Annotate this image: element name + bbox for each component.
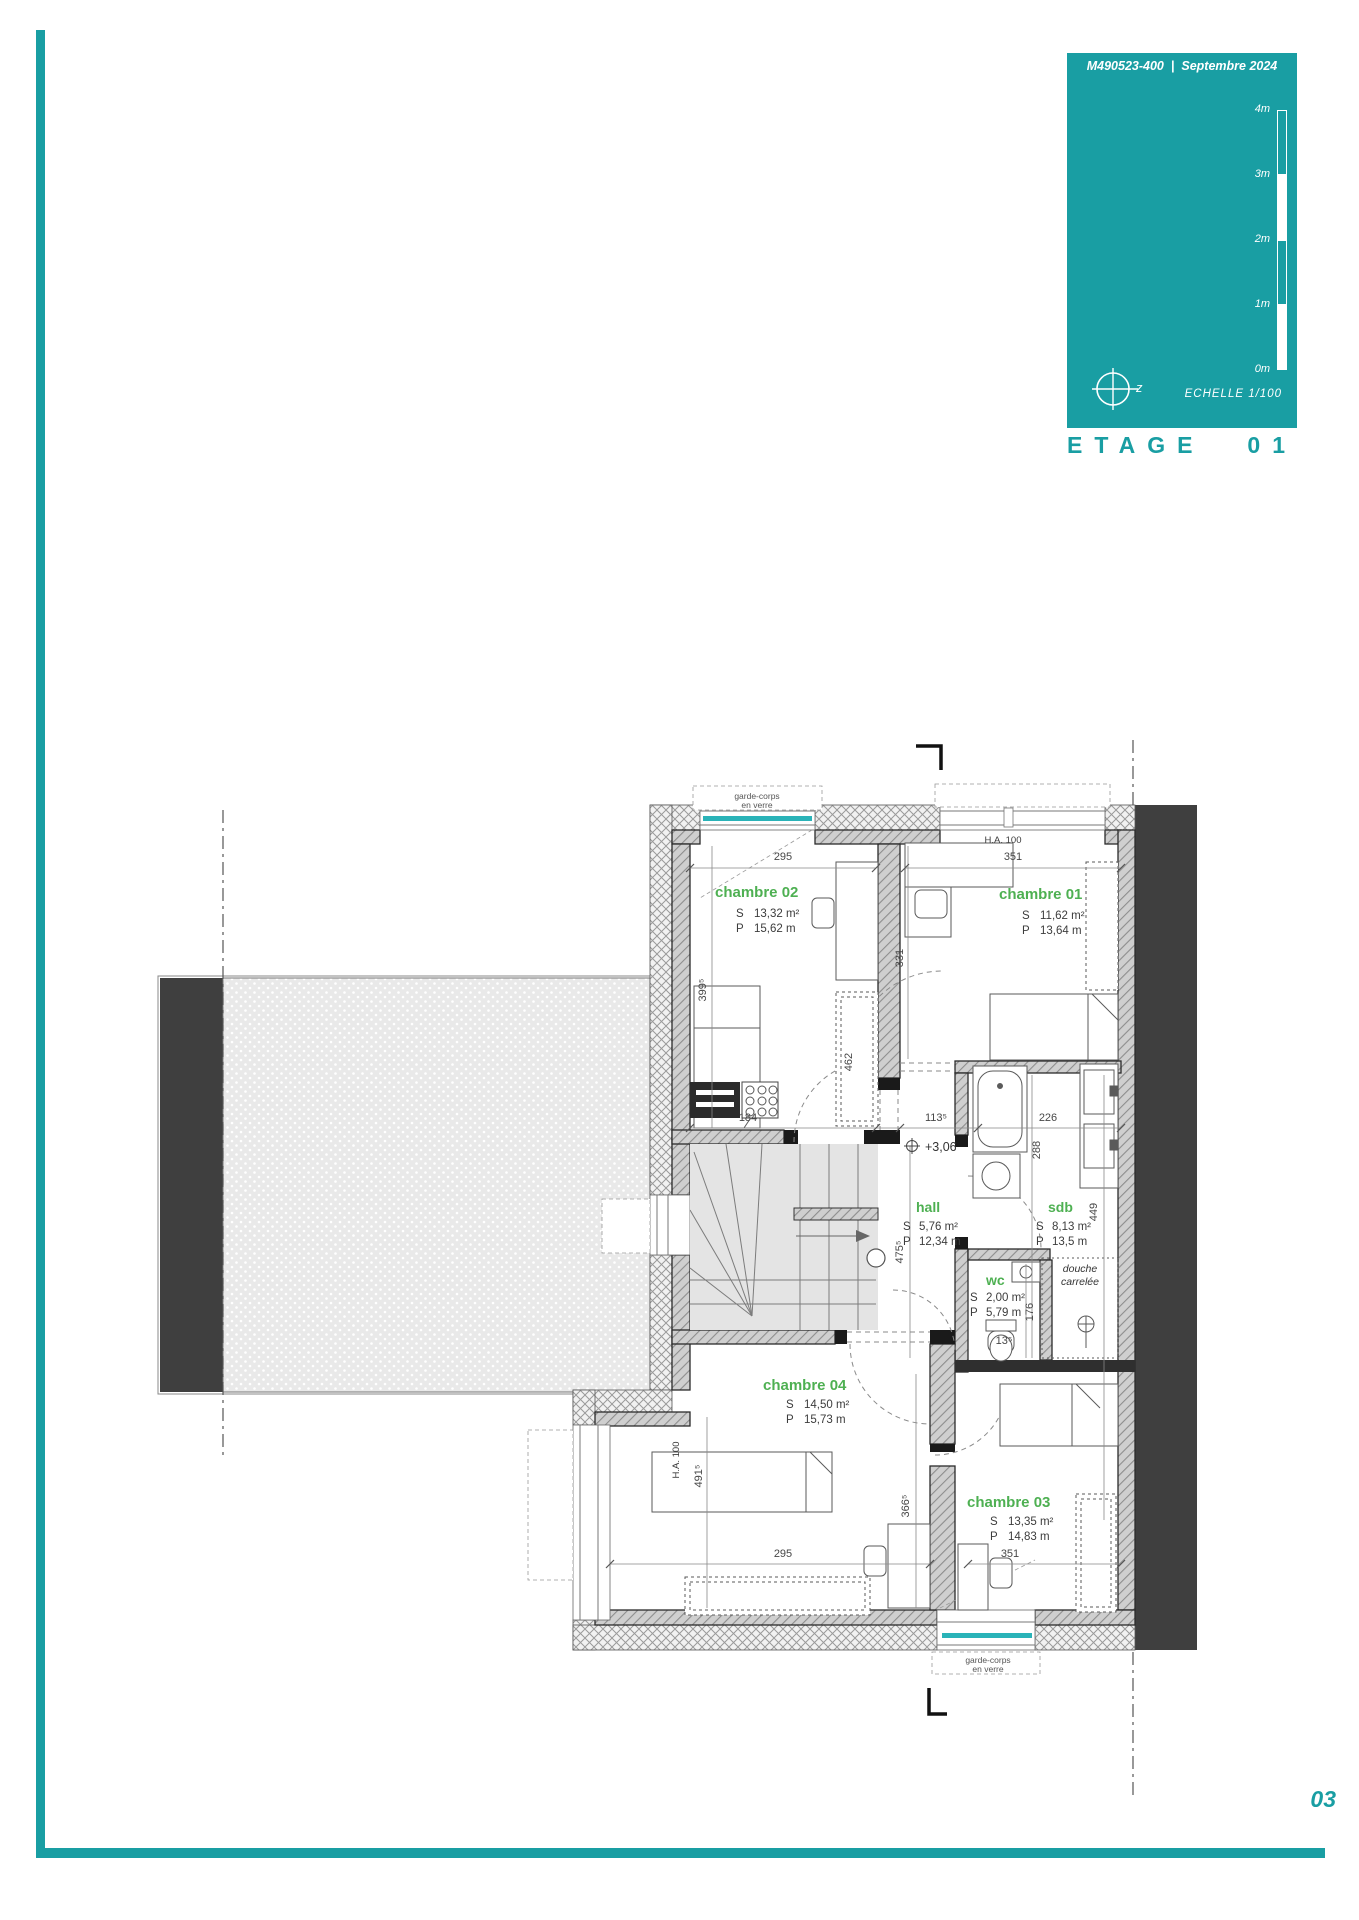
svg-text:288: 288 (1031, 1141, 1043, 1159)
douche-label: douche (1063, 1263, 1098, 1275)
room-name-hall: hall (916, 1199, 940, 1215)
svg-text:5,76 m²: 5,76 m² (919, 1221, 958, 1233)
radiator (690, 1082, 740, 1118)
desk (905, 843, 1013, 887)
north-compass-icon (1090, 364, 1142, 414)
scale-tick-1m: 1m (1240, 298, 1270, 310)
window-ch03 (937, 1610, 1035, 1650)
svg-text:8,13 m²: 8,13 m² (1052, 1221, 1091, 1233)
svg-text:13⁵: 13⁵ (996, 1335, 1013, 1347)
svg-text:12,34 m: 12,34 m (919, 1236, 961, 1248)
svg-text:14,50 m²: 14,50 m² (804, 1399, 850, 1411)
ha100-top: H.A. 100 (985, 835, 1022, 846)
svg-text:176: 176 (1024, 1303, 1036, 1321)
neighbor-wall-right (1135, 805, 1197, 1650)
garde-corps-glass-top (703, 816, 812, 821)
level-label: +3,06 (925, 1140, 957, 1154)
svg-text:15,73 m: 15,73 m (804, 1414, 846, 1426)
svg-text:en verre: en verre (972, 1664, 1003, 1674)
bed (1000, 1384, 1118, 1446)
svg-text:S: S (970, 1292, 978, 1304)
svg-text:P: P (1022, 925, 1030, 937)
svg-text:184: 184 (739, 1112, 757, 1124)
page: chambre 02 S 13,32 m² P 15,62 m chambre … (0, 0, 1359, 1920)
document-header: M490523-400 | Septembre 2024 (1067, 59, 1297, 73)
scale-tick-3m: 3m (1240, 168, 1270, 180)
scale-tick-4m: 4m (1240, 103, 1270, 115)
room-name-ch03: chambre 03 (967, 1494, 1050, 1511)
chair (864, 1546, 886, 1576)
svg-text:13,64 m: 13,64 m (1040, 925, 1082, 937)
svg-text:P: P (1036, 1236, 1044, 1248)
window-ch01 (940, 805, 1105, 830)
stairs (690, 1144, 885, 1330)
scale-tick-0m: 0m (1240, 363, 1270, 375)
desk (836, 862, 878, 980)
svg-text:13,32 m²: 13,32 m² (754, 908, 800, 920)
svg-text:399⁵: 399⁵ (697, 979, 709, 1002)
room-name-sdb: sdb (1048, 1199, 1073, 1215)
desk (888, 1524, 930, 1608)
header-divider: | (1171, 59, 1175, 73)
furniture-ch01 (905, 843, 1118, 1060)
room-name-ch02: chambre 02 (715, 884, 798, 901)
svg-text:462: 462 (843, 1053, 855, 1071)
doc-date: Septembre 2024 (1181, 59, 1277, 73)
wardrobe (1086, 862, 1118, 990)
svg-text:5,79 m: 5,79 m (986, 1307, 1021, 1319)
stair-newel (867, 1249, 885, 1267)
svg-text:P: P (786, 1414, 794, 1426)
flat-roof-area (158, 976, 652, 1394)
scale-bar-segment (1277, 175, 1287, 240)
svg-text:2,00 m²: 2,00 m² (986, 1292, 1025, 1304)
svg-text:351: 351 (1001, 1548, 1019, 1560)
svg-text:295: 295 (774, 1548, 792, 1560)
svg-text:S: S (1036, 1221, 1044, 1233)
room-name-wc: wc (985, 1272, 1005, 1288)
page-number: 03 (1280, 1786, 1336, 1813)
garde-corps-glass-bottom (942, 1633, 1032, 1638)
svg-text:S: S (990, 1516, 998, 1528)
svg-text:13,35 m²: 13,35 m² (1008, 1516, 1054, 1528)
scale-tick-2m: 2m (1240, 233, 1270, 245)
doc-reference: M490523-400 (1087, 59, 1164, 73)
scale-bar-segment (1277, 240, 1287, 305)
svg-text:S: S (786, 1399, 794, 1411)
svg-text:P: P (736, 923, 744, 935)
svg-text:351: 351 (1004, 851, 1022, 863)
wall-dark-band (955, 1360, 1135, 1372)
svg-text:13,5 m: 13,5 m (1052, 1236, 1087, 1248)
chair (915, 890, 947, 918)
svg-text:11,62 m²: 11,62 m² (1040, 910, 1085, 922)
window-landing (650, 1195, 690, 1255)
svg-text:en verre: en verre (741, 800, 772, 810)
svg-text:S: S (1022, 910, 1030, 922)
scale-text: ECHELLE 1/100 (1142, 388, 1282, 400)
chair (812, 898, 834, 928)
chair (990, 1558, 1012, 1588)
level-marker (904, 1138, 920, 1154)
svg-text:366⁵: 366⁵ (900, 1495, 912, 1518)
ha100-left: H.A. 100 (671, 1442, 682, 1479)
room-name-ch04: chambre 04 (763, 1377, 847, 1394)
svg-text:295: 295 (774, 851, 792, 863)
furniture-ch02 (690, 862, 878, 1128)
svg-text:226: 226 (1039, 1112, 1057, 1124)
svg-text:449: 449 (1088, 1203, 1100, 1221)
scale-bar-segment (1277, 305, 1287, 370)
window-ch04 (573, 1425, 610, 1620)
svg-text:475⁵: 475⁵ (894, 1241, 906, 1264)
left-accent-bar (36, 30, 45, 1858)
scale-bar-segment (1277, 110, 1287, 175)
room-name-ch01: chambre 01 (999, 886, 1082, 903)
desk (958, 1544, 988, 1610)
neighbor-wall-left (160, 978, 223, 1392)
svg-text:carrelée: carrelée (1061, 1276, 1099, 1288)
floor-title: ETAGE 01 (1067, 432, 1297, 459)
svg-text:331: 331 (894, 949, 906, 967)
svg-text:15,62 m: 15,62 m (754, 923, 796, 935)
svg-text:S: S (903, 1221, 911, 1233)
svg-text:113⁵: 113⁵ (925, 1112, 947, 1124)
svg-text:14,83 m: 14,83 m (1008, 1531, 1050, 1543)
svg-text:P: P (990, 1531, 998, 1543)
toilet-tank (986, 1320, 1016, 1331)
svg-text:491⁵: 491⁵ (693, 1465, 705, 1488)
bed (990, 994, 1118, 1060)
svg-text:S: S (736, 908, 744, 920)
svg-text:P: P (970, 1307, 978, 1319)
bottom-accent-bar (36, 1848, 1325, 1858)
